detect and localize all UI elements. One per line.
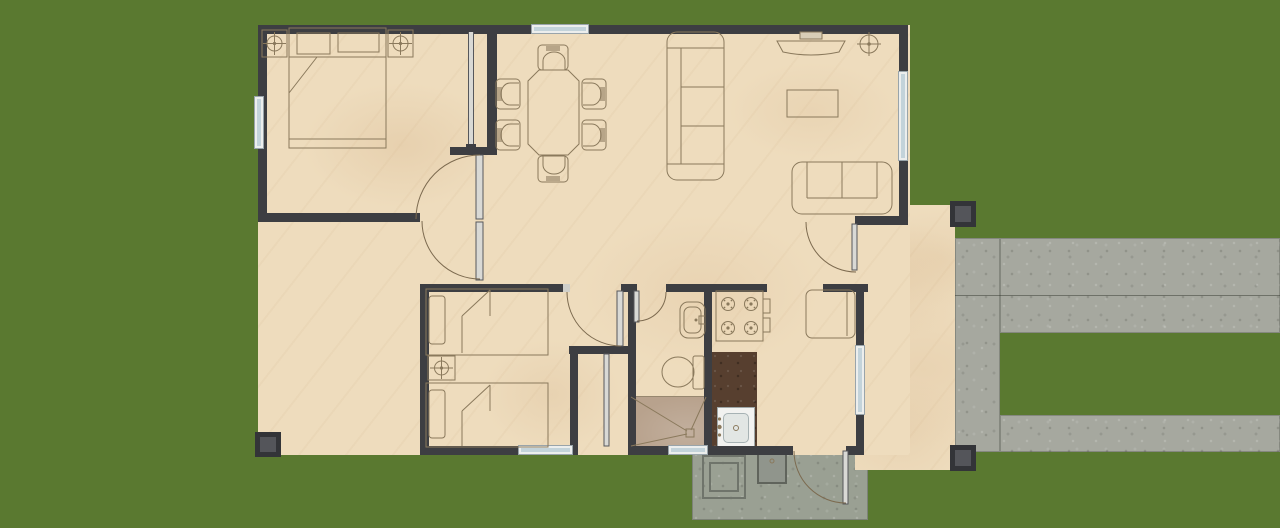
loveseat [792,162,892,214]
column-porch-left [255,432,281,457]
dining-chair-north [538,45,568,70]
lamp-icon [430,357,453,379]
toilet [662,356,704,389]
burner [722,322,735,335]
door-porch-left [422,221,483,280]
dining-chair-east-south [582,120,606,150]
dining-chair-south [538,156,568,182]
dining-chair-east-north [582,79,606,109]
lamp-icon [263,32,286,55]
door-bedroom1 [416,155,483,219]
stove [716,291,770,341]
column-porch-bottom-right [950,445,976,471]
fridge [806,290,855,338]
sliding-panel [466,27,476,149]
single-bed-bottom [426,383,548,447]
bathroom-sink [680,302,705,338]
column-porch-top-right [950,201,976,227]
ceiling-fan-icon [857,32,881,56]
coffee-table [787,90,838,117]
door-bathroom [634,291,666,322]
door-living-porch [806,222,857,272]
tv-unit [777,32,845,55]
door-bedroom2 [567,291,623,346]
floor-plan-canvas [0,0,1280,528]
kitchen-sink-details [717,417,738,436]
stove-knob-panel [763,318,770,332]
single-bed-top [426,289,548,355]
door-back-kitchen [794,451,848,504]
double-bed [289,28,386,148]
burner [745,298,758,311]
lamp-icon [389,32,412,55]
nightstand-left [262,30,287,57]
nightstand-right [388,30,413,57]
stove-knob-panel [763,299,770,313]
dining-chair-west-south [496,120,520,150]
shower-drain [686,429,694,437]
dining-chair-west-north [496,79,520,109]
burner [745,322,758,335]
nightstand-bedroom2 [428,356,455,380]
shower-slope-lines [631,397,706,446]
tub-drain-dot [770,459,774,463]
furniture-layer [0,0,1280,528]
door-storage [604,354,609,446]
sofa-three-seat [667,32,724,180]
burner [722,298,735,311]
dining-table [528,70,579,155]
